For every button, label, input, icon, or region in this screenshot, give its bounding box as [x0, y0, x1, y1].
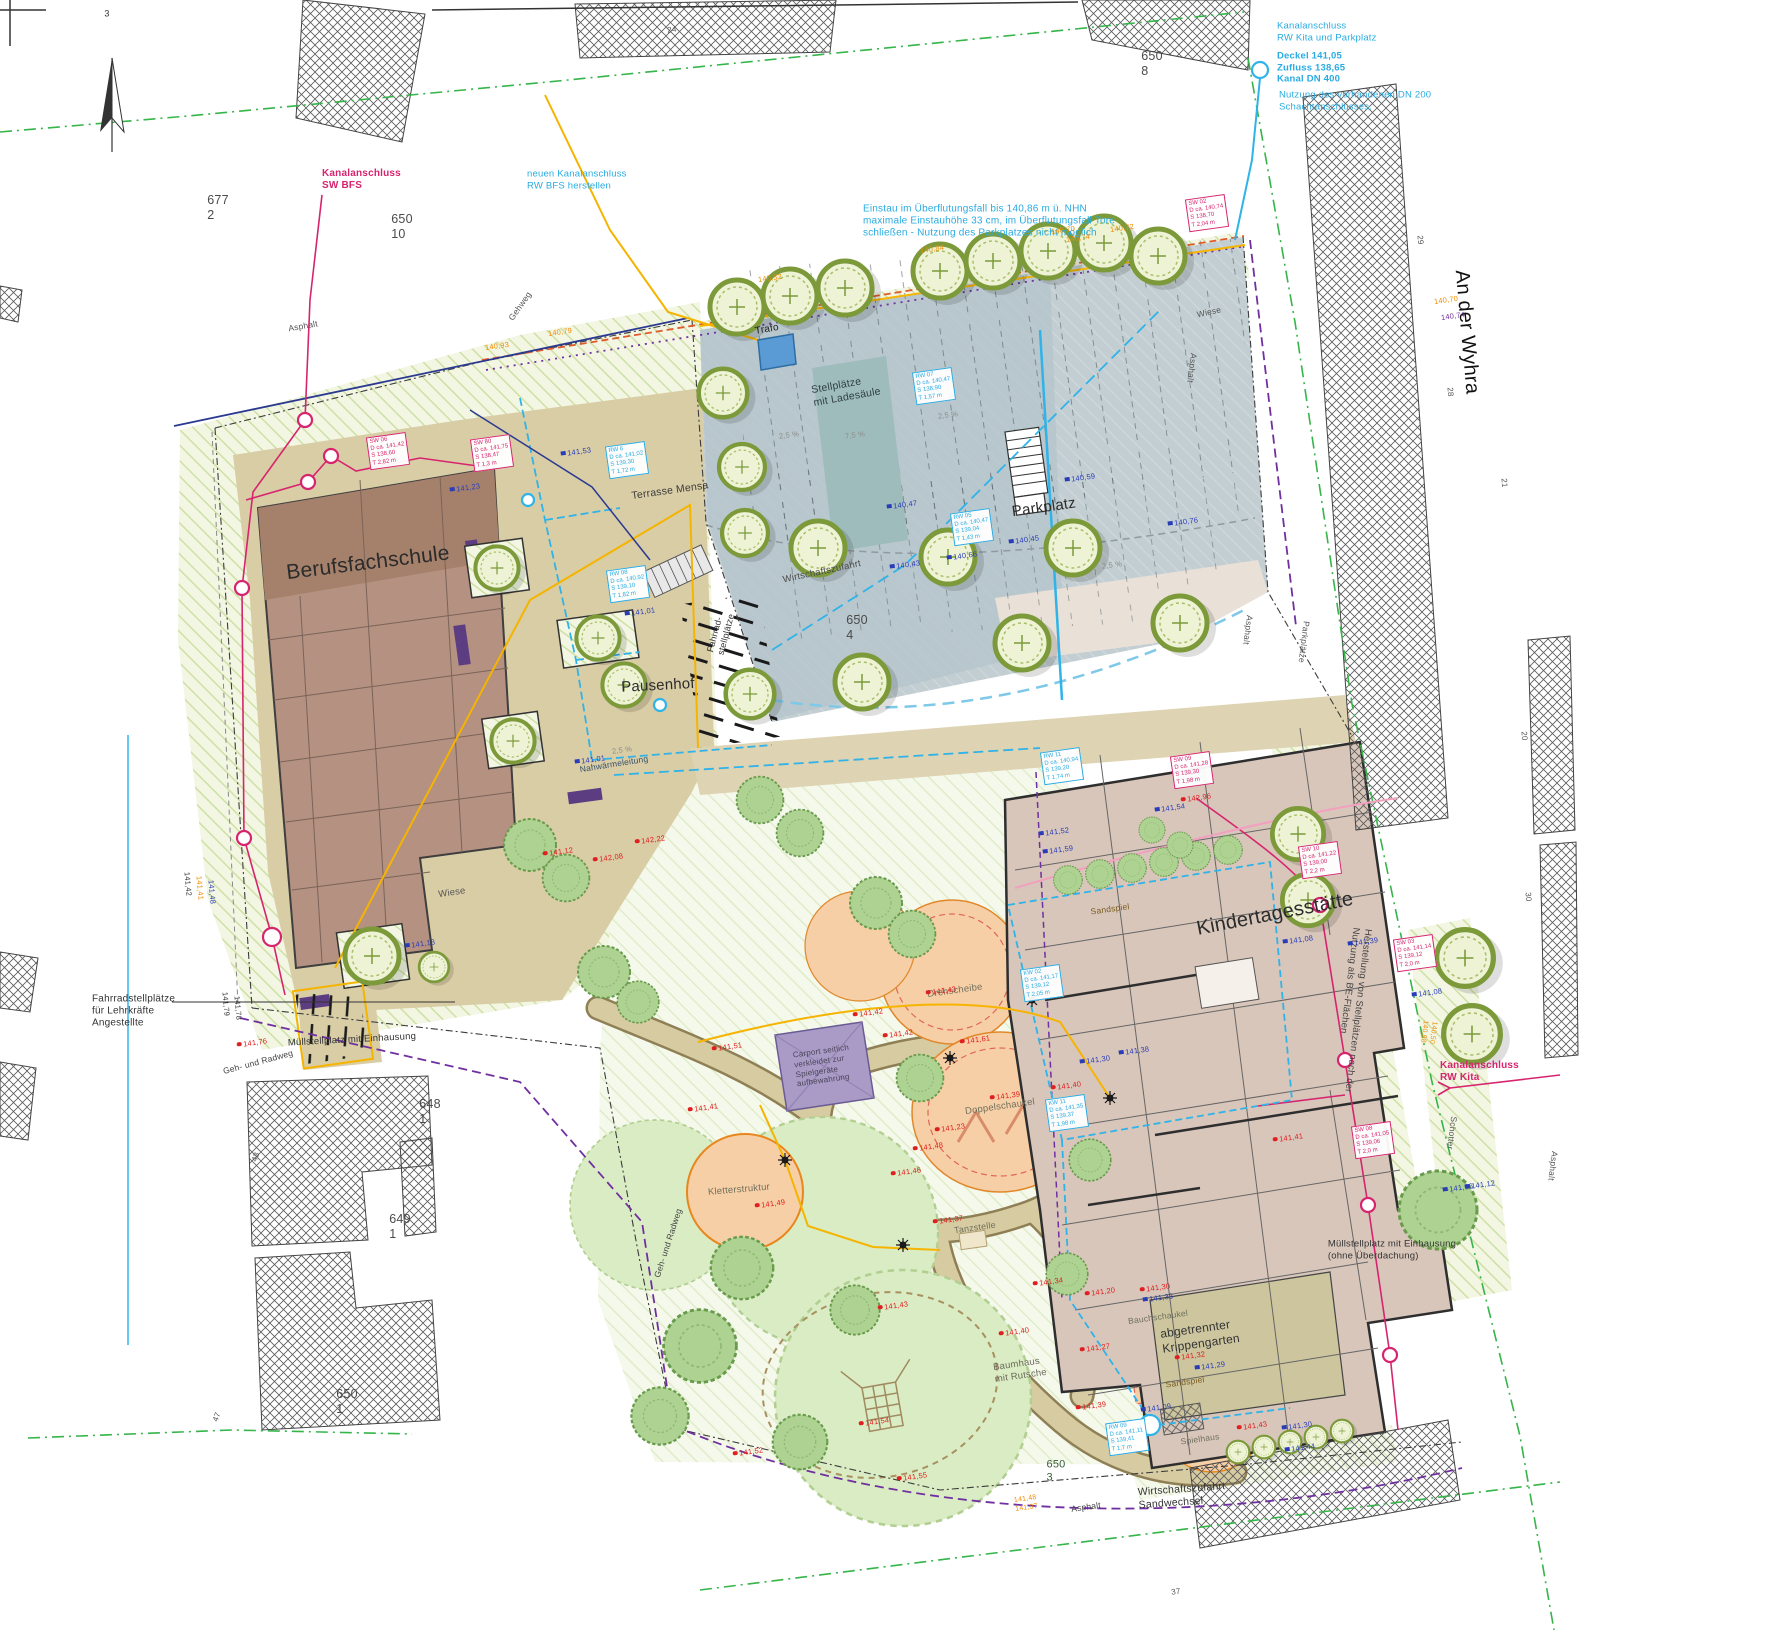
- area-label-pausenhof: Pausenhof: [621, 675, 695, 697]
- meas-stack-3: 141,48: [206, 880, 217, 905]
- meas-blue: 140,76: [1167, 515, 1199, 528]
- note-kanal-rw-kita: Kanalanschluss RW Kita: [1440, 1060, 1519, 1084]
- play-label-tanzstelle: Tanzstelle: [953, 1220, 996, 1237]
- manhole-info-sw-6: SW 03 D ca. 141,14 S 139,12 T 2,0 m: [1393, 934, 1437, 972]
- meas-blue: 140,47: [886, 498, 918, 511]
- housenum-28: 28: [1445, 387, 1456, 397]
- meas-red: 141,61: [959, 1033, 991, 1046]
- manhole-info-sw-5: SW 10 D ca. 141,22 S 139,00 T 2,2 m: [1298, 841, 1342, 879]
- play-label-sandspiel-1: Sandspiel: [1090, 901, 1130, 917]
- manhole-info-sw-1: SW 06 D ca. 141,42 S 138,60 T 2,82 m: [366, 432, 410, 470]
- parcel-650-10: 650 10: [391, 212, 412, 243]
- manhole-info-rw-1: RW 6 D ca. 141,02 S 139,30 T 1,72 m: [605, 441, 649, 479]
- manhole-info-sw-2: SW 80 D ca. 141,75 S 138,47 T 1,3 m: [470, 434, 514, 472]
- note-deckel-zufluss: Deckel 141,05 Zufluss 138,65 Kanal DN 40…: [1277, 51, 1345, 86]
- area-label-stellplaetze-ladesaeule: Stellplätze mit Ladesäule: [810, 372, 881, 409]
- slope-label: 7,5 %: [844, 429, 865, 441]
- road-label-wirtschaftszufahrt: Wirtschaftszufahrt: [782, 558, 862, 586]
- parcel-650-1: 650 1: [336, 1387, 357, 1418]
- meas-blue: 141,52: [1038, 825, 1070, 838]
- area-label-terrasse-mensa: Terrasse Mensa: [631, 479, 710, 502]
- meas-red: 141,43: [1236, 1419, 1268, 1432]
- parcel-650-8: 650 8: [1141, 49, 1162, 80]
- note-fahrradstellplaetze: Fahrradstellplätze für Lehrkräfte Angest…: [92, 994, 175, 1031]
- meas-stack-5: 141,78: [232, 996, 243, 1021]
- meas-blue: 141,23: [449, 481, 481, 494]
- meas-orange: 140,50 140,98: [1418, 1020, 1438, 1045]
- manhole-info-rw-5: RW 11 D ca. 140,94 S 139,20 T 1,74 m: [1040, 747, 1084, 785]
- meas-red: 141,42: [852, 1006, 884, 1019]
- meas-red: 141,51: [711, 1040, 743, 1053]
- meas-red: 142,96: [1180, 791, 1212, 804]
- meas-red: 142,08: [592, 851, 624, 864]
- play-label-bauchschaukel: Bauchschaukel: [1127, 1308, 1188, 1327]
- parcel-649-1: 649 1: [389, 1212, 410, 1243]
- housenum-20: 20: [1519, 731, 1530, 741]
- note-muellstellplatz-2: Müllstellplatz mit Einhausung (ohne Über…: [1328, 1238, 1456, 1261]
- meas-blue: 141,53: [560, 445, 592, 458]
- road-label-wirtschaftszufahrt-sued: Wirtschaftszufahrt Sandwechsel: [1137, 1480, 1226, 1512]
- meas-blue: 141,30: [1281, 1419, 1313, 1432]
- meas-blue: 141,59: [1042, 843, 1074, 856]
- meas-blue: 141,12: [1464, 1178, 1496, 1191]
- meas-red: 141,54: [858, 1415, 890, 1428]
- meas-red: 141,46: [890, 1165, 922, 1178]
- meas-red: 141,41: [687, 1101, 719, 1114]
- meas-red: 142,22: [634, 833, 666, 846]
- meas-red: 141,76: [236, 1036, 268, 1049]
- meas-red: 141,12: [542, 845, 574, 858]
- meas-blue: 141,18: [404, 937, 436, 950]
- meas-blue: 140,66: [946, 549, 978, 562]
- parcel-650-4: 650 4: [846, 613, 867, 644]
- slope-label: 2,5 %: [778, 429, 799, 441]
- surface-label-asphalt-1: Asphalt: [287, 318, 318, 333]
- meas-red: 141,39: [1075, 1399, 1107, 1412]
- site-plan: BerufsfachschuleKindertagesstätteParkpla…: [0, 0, 1772, 1645]
- meas-blue: 141,29: [1194, 1359, 1226, 1372]
- meas-blue: 141,09: [1140, 1401, 1172, 1414]
- labels-layer: BerufsfachschuleKindertagesstätteParkpla…: [0, 0, 1772, 1645]
- meas-orange: 140,70: [1050, 224, 1075, 236]
- note-nutzung-dn200: Nutzung des vorhandenen DN 200 Schachtan…: [1279, 89, 1431, 112]
- trafo-label: Trafo: [754, 322, 780, 338]
- street-label-an-der-wyhra: An der Wyhra: [1449, 269, 1484, 395]
- meas-red: 141,37: [932, 1213, 964, 1226]
- slope-label: 2,5 %: [1101, 559, 1122, 571]
- meas-stack-2: 141,41: [194, 876, 205, 901]
- surface-label-schotter: Schotter: [1445, 1116, 1459, 1150]
- housenum-24: 24: [667, 25, 678, 36]
- meas-blue: 141,38: [1118, 1044, 1150, 1057]
- note-muellstellplatz-1: Müllstellplatz mit Einhausung: [288, 1031, 417, 1049]
- manhole-info-kw-1: KW 02 D ca. 141,17 S 139,12 T 2,05 m: [1020, 964, 1064, 1002]
- note-neuer-kanalanschluss: neuen Kanalanschluss RW BFS herstellen: [527, 168, 627, 191]
- meas-red: 141,42: [882, 1027, 914, 1040]
- manhole-info-rw-4: RW 05 D ca. 140,47 S 139,04 T 1,43 m: [950, 508, 994, 546]
- note-herstellung-stellplaetze: Herstellung von Stellplätzen nach der Nu…: [1330, 927, 1373, 1093]
- meas-blue: 141,44: [1284, 1441, 1316, 1454]
- meas-blue: 141,16: [1442, 1181, 1474, 1194]
- meas-red: 141,34: [1032, 1275, 1064, 1288]
- meas-orange: 140,79: [547, 326, 572, 338]
- play-label-baumhaus: Baumhaus mit Rutsche: [992, 1355, 1047, 1385]
- meas-red: 141,40: [998, 1325, 1030, 1338]
- surface-label-asphalt-3: Asphalt: [1241, 615, 1255, 646]
- meas-red: 141,52: [732, 1445, 764, 1458]
- housenum-47: 47: [211, 1411, 223, 1423]
- meas-orange: 140,74: [1065, 232, 1090, 244]
- play-label-spielhaus: Spielhaus: [1180, 1431, 1220, 1447]
- meas-red: 141,43: [877, 1299, 909, 1312]
- manhole-info-rw-3: RW 07 D ca. 140,47 S 138,90 T 1,57 m: [912, 367, 956, 405]
- note-carport: Carport seitlich verkleidet zur Spielger…: [792, 1043, 853, 1089]
- meas-red: 141,40: [1050, 1079, 1082, 1092]
- parcel-648-1: 648 1: [419, 1097, 440, 1128]
- meas-red: 141,39: [989, 1089, 1021, 1102]
- play-label-sandspiel-2: Sandspiel: [1165, 1374, 1205, 1390]
- meas-orange: 140,93: [484, 340, 509, 352]
- play-label-doppelschaukel: Doppelschaukel: [964, 1096, 1035, 1117]
- meas-red: 141,48: [912, 1140, 944, 1153]
- building-label-berufsfachschule: Berufsfachschule: [285, 540, 451, 585]
- mark-3: 3: [104, 9, 109, 20]
- meas-red: 141,23: [934, 1121, 966, 1134]
- path-label-geh-radweg-1: Geh- und Radweg: [222, 1048, 294, 1077]
- manhole-info-rw-2: RW 08 D ca. 140,92 S 139,10 T 1,82 m: [606, 565, 650, 603]
- area-label-wiese-2: Wiese: [1196, 304, 1222, 319]
- meas-blue: 140,59: [1064, 471, 1096, 484]
- meas-blue: 141,01: [574, 753, 606, 766]
- area-label-fahrrad-stellplaetze: Fahrrad- stellplätze: [705, 610, 737, 656]
- meas-blue: 140,45: [1008, 533, 1040, 546]
- slope-label: 2,5 %: [611, 744, 632, 756]
- meas-blue: 141,08: [1411, 986, 1443, 999]
- area-label-parkplatz: Parkplatz: [1011, 494, 1077, 521]
- manhole-info-kw-2: KW 11 D ca. 141,35 S 139,37 T 1,98 m: [1045, 1094, 1089, 1132]
- area-label-parkplaetze-r: Parkplätze: [1296, 620, 1311, 663]
- manhole-info-sw-4: SW 09 D ca. 141,28 S 139,30 T 1,98 m: [1170, 751, 1214, 789]
- housenum-29: 29: [1415, 235, 1426, 245]
- meas-red: 141,49: [754, 1197, 786, 1210]
- line-label-nahwaermeleitung: Nahwärmeleitung: [579, 753, 649, 774]
- meas-red: 141,30: [1139, 1281, 1171, 1294]
- surface-label-asphalt-5: Asphalt: [1546, 1151, 1560, 1182]
- meas-red: 141,27: [1079, 1341, 1111, 1354]
- meas-red: 141,43: [925, 984, 957, 997]
- meas-red: 141,55: [896, 1470, 928, 1483]
- play-label-kletterstruktur: Kletterstruktur: [708, 1182, 771, 1199]
- slope-label: 2,5 %: [937, 409, 958, 421]
- meas-blue: 141,01: [624, 605, 656, 618]
- parcel-677-2: 677 2: [207, 193, 228, 224]
- note-kanal-rw-kita-parkplatz: Kanalanschluss RW Kita und Parkplatz: [1277, 20, 1377, 43]
- note-kanal-sw-bfs: Kanalanschluss SW BFS: [322, 168, 401, 192]
- meas-orange: 140,52: [757, 272, 782, 284]
- path-label-geh-radweg-2: Geh- und Radweg: [652, 1207, 684, 1279]
- meas-orange: 140,84: [919, 243, 944, 255]
- meas-orange: 140,72: [1109, 222, 1134, 234]
- meas-stack-4: 141,79: [220, 992, 231, 1017]
- parcel-650-3: 650 3: [1047, 1459, 1066, 1486]
- area-label-wiese-1: Wiese: [438, 885, 467, 900]
- meas-blue: 141,33: [1142, 1291, 1174, 1304]
- meas-stack-1: 141,42: [182, 872, 193, 897]
- meas-orange: 141,48 141,37: [1014, 1494, 1039, 1514]
- surface-label-asphalt-2: Asphalt: [1185, 353, 1199, 384]
- building-label-kindertagesstaette: Kindertagesstätte: [1195, 887, 1356, 941]
- area-label-krippengarten: abgetrennter Krippengarten: [1159, 1316, 1240, 1356]
- housenum-21: 21: [1499, 478, 1510, 488]
- meas-orange: 140,74: [1440, 310, 1465, 322]
- surface-label-asphalt-4: Asphalt: [1071, 1500, 1102, 1514]
- meas-orange: 140,70: [1433, 294, 1458, 306]
- housenum-43: 43: [250, 1151, 262, 1163]
- meas-blue: 141,39: [1347, 935, 1379, 948]
- meas-red: 141,20: [1084, 1285, 1116, 1298]
- path-label-gehweg: Gehweg: [506, 290, 533, 323]
- meas-blue: 141,30: [1079, 1053, 1111, 1066]
- meas-blue: 141,54: [1154, 801, 1186, 814]
- housenum-37: 37: [1171, 1587, 1182, 1598]
- note-einstau: Einstau im Überflutungsfall bis 140,86 m…: [863, 204, 1115, 241]
- meas-blue: 141,08: [1282, 933, 1314, 946]
- manhole-info-rw-6: RW 09 D ca. 141,11 S 139,41 T 1,7 m: [1105, 1418, 1149, 1456]
- housenum-30: 30: [1523, 892, 1534, 902]
- manhole-info-sw-3: SW 02 D ca. 140,74 S 138,70 T 2,04 m: [1185, 194, 1229, 232]
- meas-blue: 140,43: [889, 558, 921, 571]
- play-label-drehscheibe: Drehscheibe: [927, 981, 984, 1000]
- meas-red: 141,32: [1174, 1349, 1206, 1362]
- meas-red: 141,41: [1272, 1131, 1304, 1144]
- manhole-info-sw-7: SW 08 D ca. 141,05 S 139,06 T 2,0 m: [1351, 1121, 1395, 1159]
